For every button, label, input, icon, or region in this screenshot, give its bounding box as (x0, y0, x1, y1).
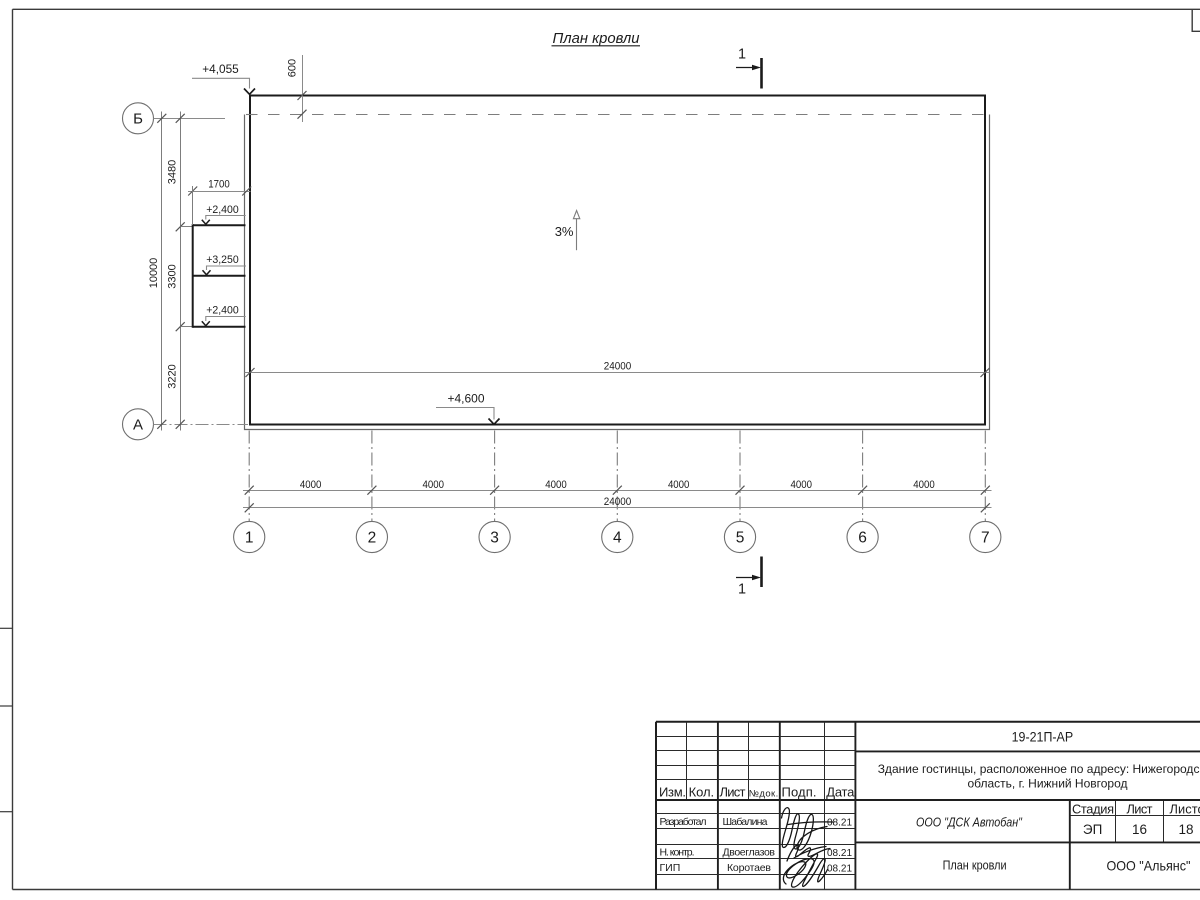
svg-text:4000: 4000 (791, 479, 813, 491)
svg-text:3220: 3220 (167, 364, 179, 388)
svg-text:+2,400: +2,400 (206, 204, 239, 216)
svg-text:область, г. Нижний Новгород: область, г. Нижний Новгород (967, 777, 1127, 791)
svg-text:Подп.: Подп. (782, 785, 817, 800)
svg-text:Листов: Листов (1170, 801, 1200, 816)
svg-text:4000: 4000 (668, 479, 690, 491)
svg-text:3480: 3480 (167, 160, 179, 184)
svg-text:18: 18 (1178, 822, 1193, 837)
svg-text:Коротаев: Коротаев (727, 862, 771, 874)
svg-text:+2,400: +2,400 (206, 304, 239, 316)
svg-text:4: 4 (613, 530, 622, 547)
svg-text:5: 5 (736, 530, 745, 547)
svg-text:3%: 3% (555, 224, 574, 239)
svg-text:4000: 4000 (913, 479, 935, 491)
svg-text:ЭП: ЭП (1083, 822, 1102, 837)
svg-text:Дата: Дата (826, 785, 855, 800)
svg-text:Здание гостинцы, расположенное: Здание гостинцы, расположенное по адресу… (878, 762, 1200, 776)
svg-text:08.21: 08.21 (827, 863, 852, 874)
svg-text:3: 3 (490, 530, 499, 547)
svg-text:1700: 1700 (208, 179, 230, 191)
svg-text:№док.: №док. (749, 789, 779, 800)
svg-text:Шабалина: Шабалина (723, 816, 768, 828)
svg-text:Лист: Лист (1127, 801, 1153, 816)
svg-text:План кровли: План кровли (553, 30, 641, 47)
svg-text:16: 16 (1132, 822, 1147, 837)
svg-text:1: 1 (738, 582, 746, 598)
svg-text:Н. контр.: Н. контр. (660, 847, 695, 859)
svg-text:24000: 24000 (604, 361, 632, 373)
svg-text:ООО "ДСК Автобан": ООО "ДСК Автобан" (916, 816, 1022, 830)
svg-text:+4,055: +4,055 (202, 62, 239, 76)
svg-text:2: 2 (368, 530, 377, 547)
svg-text:3300: 3300 (167, 264, 179, 288)
svg-text:План кровли: План кровли (943, 859, 1007, 873)
svg-text:4000: 4000 (423, 479, 445, 491)
svg-text:1: 1 (738, 47, 746, 63)
svg-text:Б: Б (133, 111, 143, 128)
svg-text:Изм.: Изм. (659, 785, 686, 800)
svg-text:6: 6 (858, 530, 867, 547)
svg-text:600: 600 (287, 59, 299, 77)
svg-text:Стадия: Стадия (1072, 801, 1114, 816)
svg-text:ГИП: ГИП (660, 862, 681, 874)
svg-text:19-21П-АР: 19-21П-АР (1012, 730, 1074, 745)
svg-text:08.21: 08.21 (827, 848, 852, 859)
svg-text:4000: 4000 (300, 479, 322, 491)
svg-text:08.21: 08.21 (827, 818, 852, 829)
svg-text:Двоеглазов: Двоеглазов (723, 847, 776, 859)
svg-text:Лист: Лист (720, 785, 746, 800)
svg-text:4000: 4000 (545, 479, 567, 491)
svg-text:Разработал: Разработал (660, 816, 707, 828)
svg-text:1: 1 (245, 530, 254, 547)
svg-text:Кол.: Кол. (689, 785, 715, 800)
svg-text:ООО "Альянс": ООО "Альянс" (1107, 858, 1191, 874)
svg-text:А: А (133, 417, 143, 434)
svg-text:10000: 10000 (148, 258, 160, 289)
svg-text:+4,600: +4,600 (448, 392, 485, 406)
svg-text:7: 7 (981, 530, 990, 547)
svg-text:24000: 24000 (604, 496, 632, 508)
svg-text:+3,250: +3,250 (206, 254, 239, 266)
